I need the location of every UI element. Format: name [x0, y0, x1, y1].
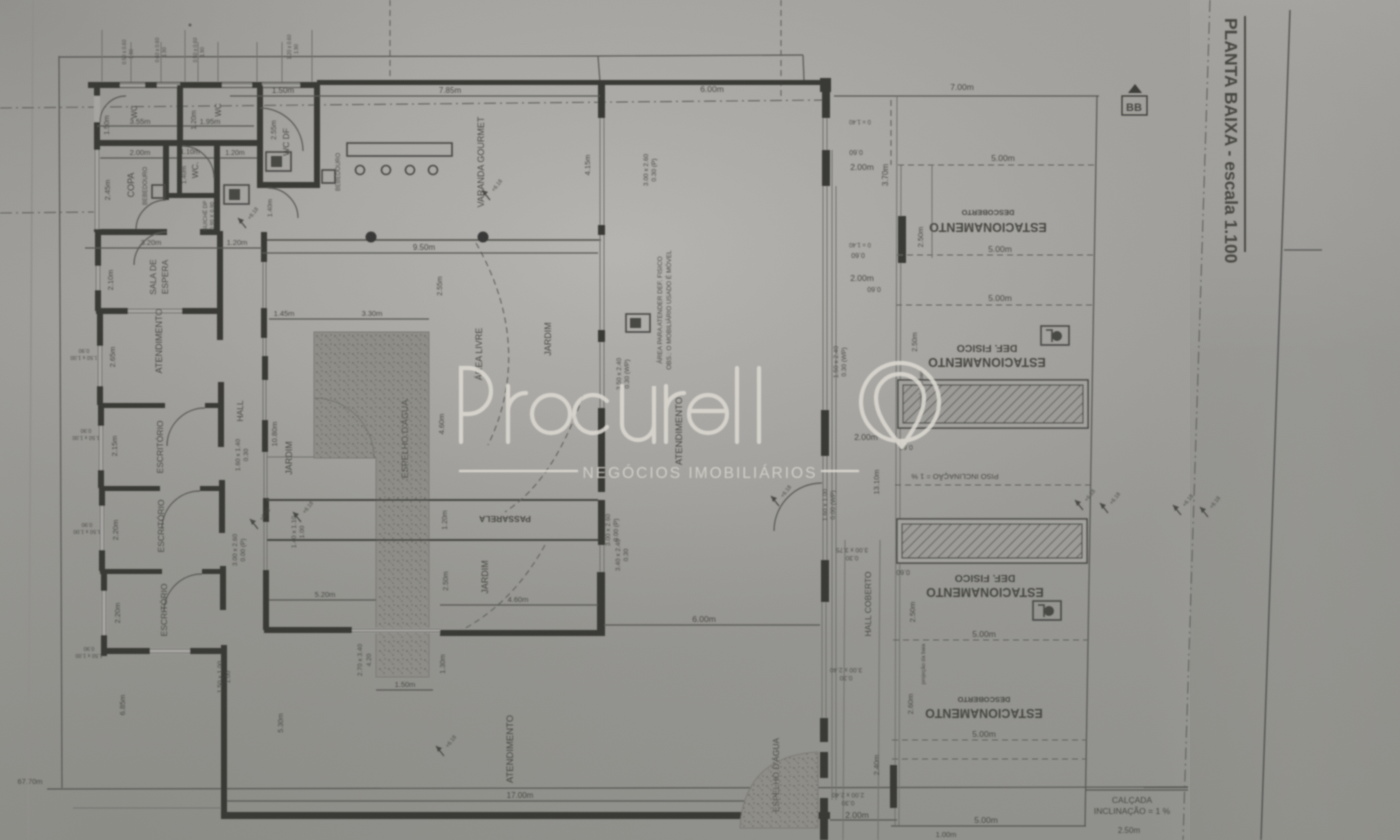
svg-text:NEGÓCIOS IMOBILIÁRIOS: NEGÓCIOS IMOBILIÁRIOS [583, 465, 818, 482]
